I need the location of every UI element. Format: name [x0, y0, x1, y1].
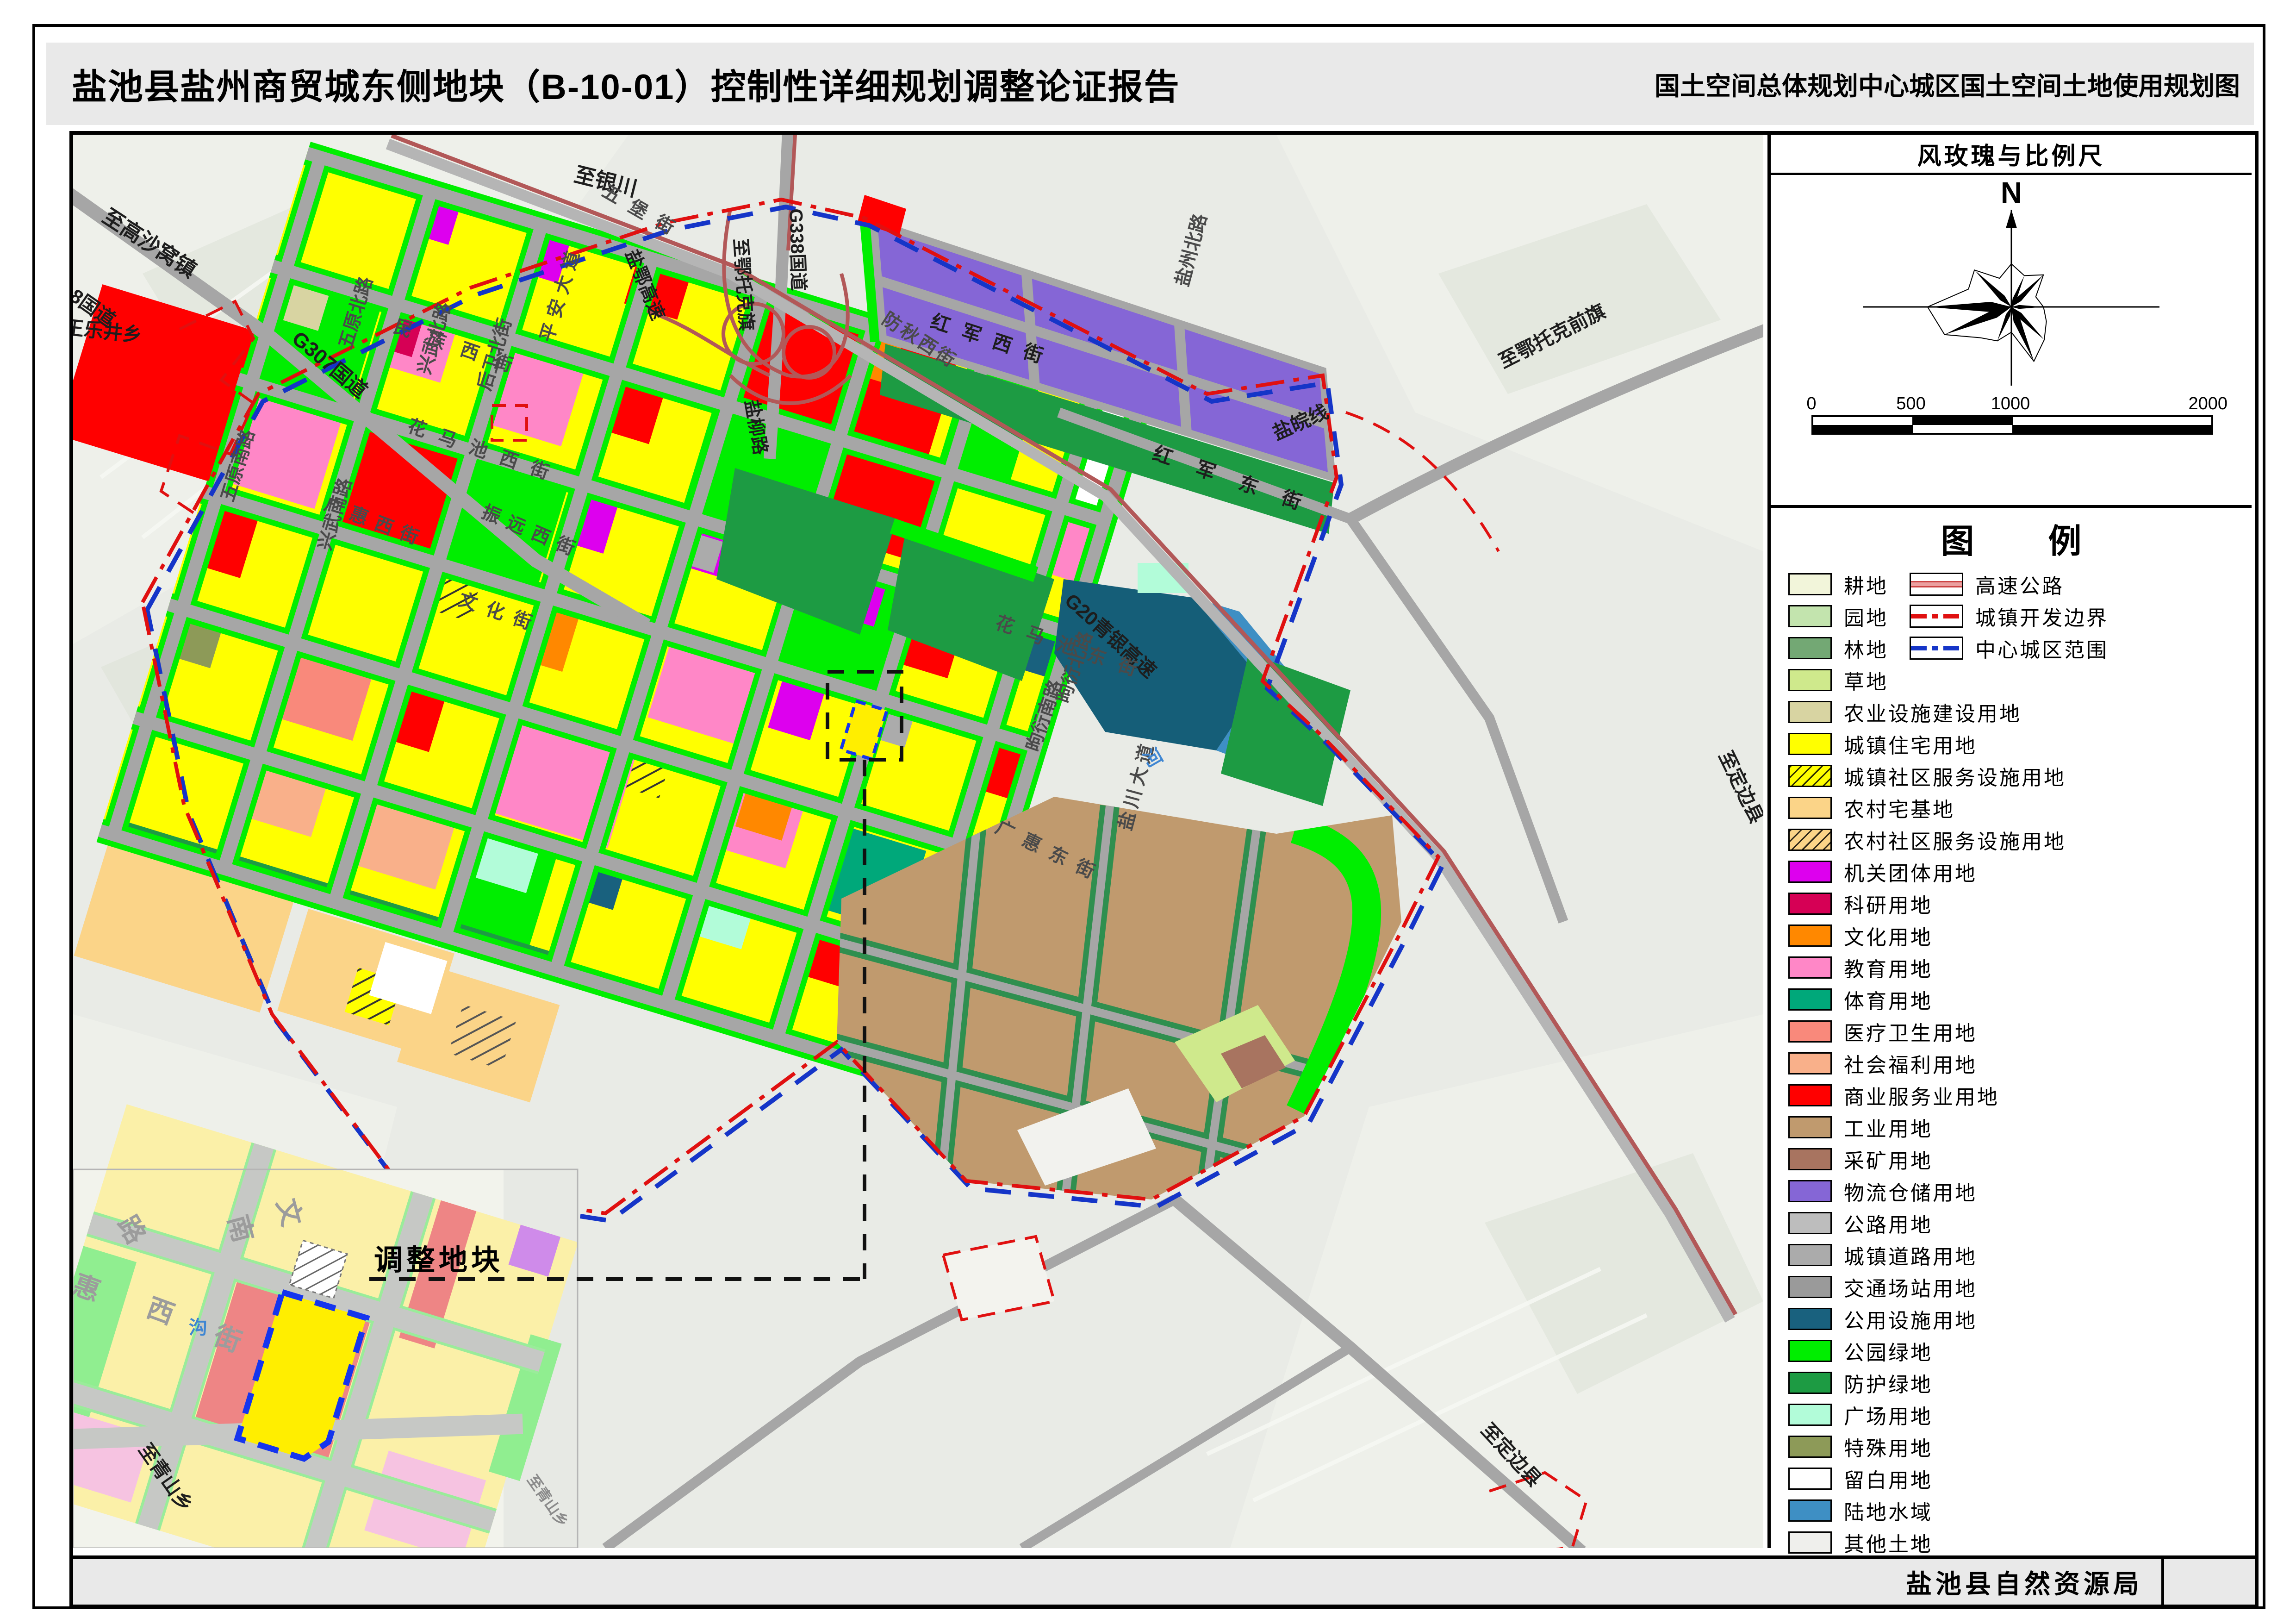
map-label: G338国道: [785, 208, 809, 291]
legend-item: 工业用地: [1788, 1111, 2252, 1143]
legend-label: 特殊用地: [1844, 1432, 1933, 1462]
footer-end-cell: [2161, 1559, 2255, 1605]
legend-line-items: 高速公路城镇开发边界中心城区范围: [1910, 568, 2109, 664]
legend-item: 广场用地: [1788, 1399, 2252, 1430]
legend-body: 耕地园地林地草地农业设施建设用地城镇住宅用地城镇社区服务设施用地农村宅基地农村社…: [1771, 568, 2252, 1558]
legend-swatch: [1788, 637, 1832, 659]
legend-label: 耕地: [1844, 569, 1888, 599]
windrose-box: 风玫瑰与比例尺 N 050010002000 m: [1771, 135, 2252, 508]
legend-item: 防护绿地: [1788, 1367, 2252, 1399]
legend-label: 机关团体用地: [1844, 857, 1977, 887]
scale-tick-label: 1000: [1991, 394, 2030, 414]
map-label: 沟: [189, 1318, 207, 1338]
legend-item: 科研用地: [1788, 887, 2252, 919]
main-frame: 至高沙窝镇G307国道至银川盐鄂高速至鄂托克旗G338国道盐柳路红军西街红军东街…: [69, 131, 2259, 1559]
legend-swatch: [1788, 1308, 1832, 1330]
map-label: 调整地块: [374, 1244, 504, 1276]
plan-report-sheet: 盐池县盐州商贸城东侧地块（B-10-01）控制性详细规划调整论证报告 国土空间总…: [0, 0, 2296, 1624]
legend-swatch: [1788, 797, 1832, 819]
legend-label: 交通场站用地: [1844, 1272, 1977, 1302]
scalebar: 050010002000 m: [1771, 394, 2252, 435]
legend-swatch: [1788, 1499, 1832, 1522]
legend-item: 体育用地: [1788, 983, 2252, 1015]
legend-swatch: [1788, 1372, 1832, 1394]
legend-item: 商业服务业用地: [1788, 1079, 2252, 1111]
legend-label: 商业服务业用地: [1844, 1081, 1999, 1110]
inset-map: [73, 1104, 591, 1548]
legend-swatch: [1788, 1148, 1832, 1170]
legend-item: 留白用地: [1788, 1462, 2252, 1494]
legend-label: 城镇住宅用地: [1844, 729, 1977, 759]
legend-swatch: [1788, 893, 1832, 915]
legend-line-item: 高速公路: [1910, 568, 2109, 600]
legend-label: 陆地水域: [1844, 1496, 1933, 1525]
planning-map: 至高沙窝镇G307国道至银川盐鄂高速至鄂托克旗G338国道盐柳路红军西街红军东街…: [73, 135, 1763, 1548]
legend-label: 农村社区服务设施用地: [1844, 825, 2066, 855]
footer: 盐池县自然资源局: [69, 1555, 2259, 1608]
legend-item: 农村社区服务设施用地: [1788, 824, 2252, 856]
scale-rows: [1811, 415, 2213, 435]
legend-label: 物流仓储用地: [1844, 1176, 1977, 1206]
legend-swatch: [1788, 1212, 1832, 1234]
side-panel: 风玫瑰与比例尺 N 050010002000 m 图 例 耕地园地林地草地农业设…: [1767, 135, 2255, 1548]
legend-label: 公路用地: [1844, 1208, 1933, 1238]
legend-label: 医疗卫生用地: [1844, 1017, 1977, 1046]
legend-swatch: [1788, 733, 1832, 755]
legend-swatch: [1788, 669, 1832, 691]
legend-label: 城镇社区服务设施用地: [1844, 761, 2066, 791]
scale-tick-label: 0: [1806, 394, 1816, 414]
legend-item: 公路用地: [1788, 1207, 2252, 1239]
legend-item: 特殊用地: [1788, 1430, 2252, 1462]
legend-swatch: [1788, 1276, 1832, 1298]
legend-label: 农业设施建设用地: [1844, 697, 2022, 727]
legend-swatch: [1788, 988, 1832, 1011]
legend-item: 公用设施用地: [1788, 1303, 2252, 1335]
legend-swatch: [1788, 701, 1832, 723]
legend-label: 体育用地: [1844, 985, 1933, 1014]
legend-item: 采矿用地: [1788, 1143, 2252, 1175]
legend-item: 社会福利用地: [1788, 1047, 2252, 1079]
legend-item: 医疗卫生用地: [1788, 1015, 2252, 1047]
legend-label: 工业用地: [1844, 1112, 1933, 1142]
legend-label: 园地: [1844, 601, 1888, 631]
legend-land-items: 耕地园地林地草地农业设施建设用地城镇住宅用地城镇社区服务设施用地农村宅基地农村社…: [1788, 568, 2252, 1558]
legend-item: 陆地水域: [1788, 1494, 2252, 1526]
legend-item: 草地: [1788, 664, 2252, 696]
legend-label: 科研用地: [1844, 889, 1933, 918]
legend-item: 交通场站用地: [1788, 1271, 2252, 1303]
legend-swatch: [1788, 924, 1832, 947]
legend-swatch: [1788, 1468, 1832, 1490]
legend-label: 中心城区范围: [1975, 633, 2109, 663]
legend-item: 机关团体用地: [1788, 856, 2252, 887]
legend-label: 公园绿地: [1844, 1336, 1933, 1366]
legend-item: 公园绿地: [1788, 1335, 2252, 1367]
legend-label: 高速公路: [1975, 569, 2064, 599]
legend-swatch: [1788, 765, 1832, 787]
legend-item: 城镇社区服务设施用地: [1788, 760, 2252, 792]
map-area: 至高沙窝镇G307国道至银川盐鄂高速至鄂托克旗G338国道盐柳路红军西街红军东街…: [73, 135, 1763, 1548]
legend-item: 文化用地: [1788, 919, 2252, 951]
legend-label: 文化用地: [1844, 921, 1933, 950]
legend-item: 城镇道路用地: [1788, 1239, 2252, 1271]
legend-label: 教育用地: [1844, 953, 1933, 982]
legend-label: 防护绿地: [1844, 1368, 1933, 1398]
scale-tick-label: 500: [1896, 394, 1925, 414]
legend-label: 公用设施用地: [1844, 1304, 1977, 1334]
windrose-title: 风玫瑰与比例尺: [1771, 135, 2252, 175]
legend-label: 草地: [1844, 665, 1888, 695]
legend-item: 农业设施建设用地: [1788, 696, 2252, 728]
legend-swatch: [1788, 861, 1832, 883]
legend-label: 林地: [1844, 633, 1888, 663]
legend-item: 教育用地: [1788, 951, 2252, 983]
legend-swatch: [1788, 1436, 1832, 1458]
legend-swatch: [1788, 1084, 1832, 1106]
legend-swatch: [1788, 829, 1832, 851]
scale-labels: 050010002000 m: [1771, 394, 2252, 415]
legend-swatch: [1788, 1116, 1832, 1138]
legend-label: 社会福利用地: [1844, 1049, 1977, 1078]
legend-swatch: [1788, 1531, 1832, 1554]
legend-line-item: 中心城区范围: [1910, 632, 2109, 664]
legend-item: 物流仓储用地: [1788, 1175, 2252, 1207]
legend-swatch: [1788, 1244, 1832, 1266]
legend-label: 城镇开发边界: [1975, 601, 2109, 631]
legend-title: 图 例: [1771, 508, 2252, 568]
legend-line-swatch: [1910, 637, 1963, 660]
legend-swatch: [1788, 1020, 1832, 1043]
map-title: 国土空间总体规划中心城区国土空间土地使用规划图: [1655, 65, 2254, 102]
legend-box: 图 例 耕地园地林地草地农业设施建设用地城镇住宅用地城镇社区服务设施用地农村宅基…: [1771, 508, 2252, 1548]
report-title: 盐池县盐州商贸城东侧地块（B-10-01）控制性详细规划调整论证报告: [46, 58, 1180, 109]
legend-swatch: [1788, 605, 1832, 627]
legend-label: 城镇道路用地: [1844, 1240, 1977, 1270]
legend-label: 其他土地: [1844, 1528, 1933, 1557]
legend-swatch: [1788, 1180, 1832, 1202]
legend-item: 城镇住宅用地: [1788, 728, 2252, 760]
agency-name: 盐池县自然资源局: [1906, 1563, 2161, 1601]
legend-swatch: [1788, 1052, 1832, 1074]
legend-label: 农村宅基地: [1844, 793, 1955, 823]
header: 盐池县盐州商贸城东侧地块（B-10-01）控制性详细规划调整论证报告 国土空间总…: [46, 43, 2254, 125]
north-label: N: [2001, 176, 2022, 209]
legend-line-swatch: [1910, 605, 1963, 628]
legend-item: 农村宅基地: [1788, 792, 2252, 824]
legend-item: 其他土地: [1788, 1526, 2252, 1558]
legend-label: 留白用地: [1844, 1464, 1933, 1493]
legend-swatch: [1788, 573, 1832, 595]
legend-swatch: [1788, 956, 1832, 979]
windrose: N: [1771, 175, 2252, 393]
legend-label: 采矿用地: [1844, 1144, 1933, 1174]
legend-line-item: 城镇开发边界: [1910, 600, 2109, 632]
legend-swatch: [1788, 1404, 1832, 1426]
legend-label: 广场用地: [1844, 1400, 1933, 1430]
legend-swatch: [1788, 1340, 1832, 1362]
legend-line-swatch: [1910, 573, 1963, 596]
